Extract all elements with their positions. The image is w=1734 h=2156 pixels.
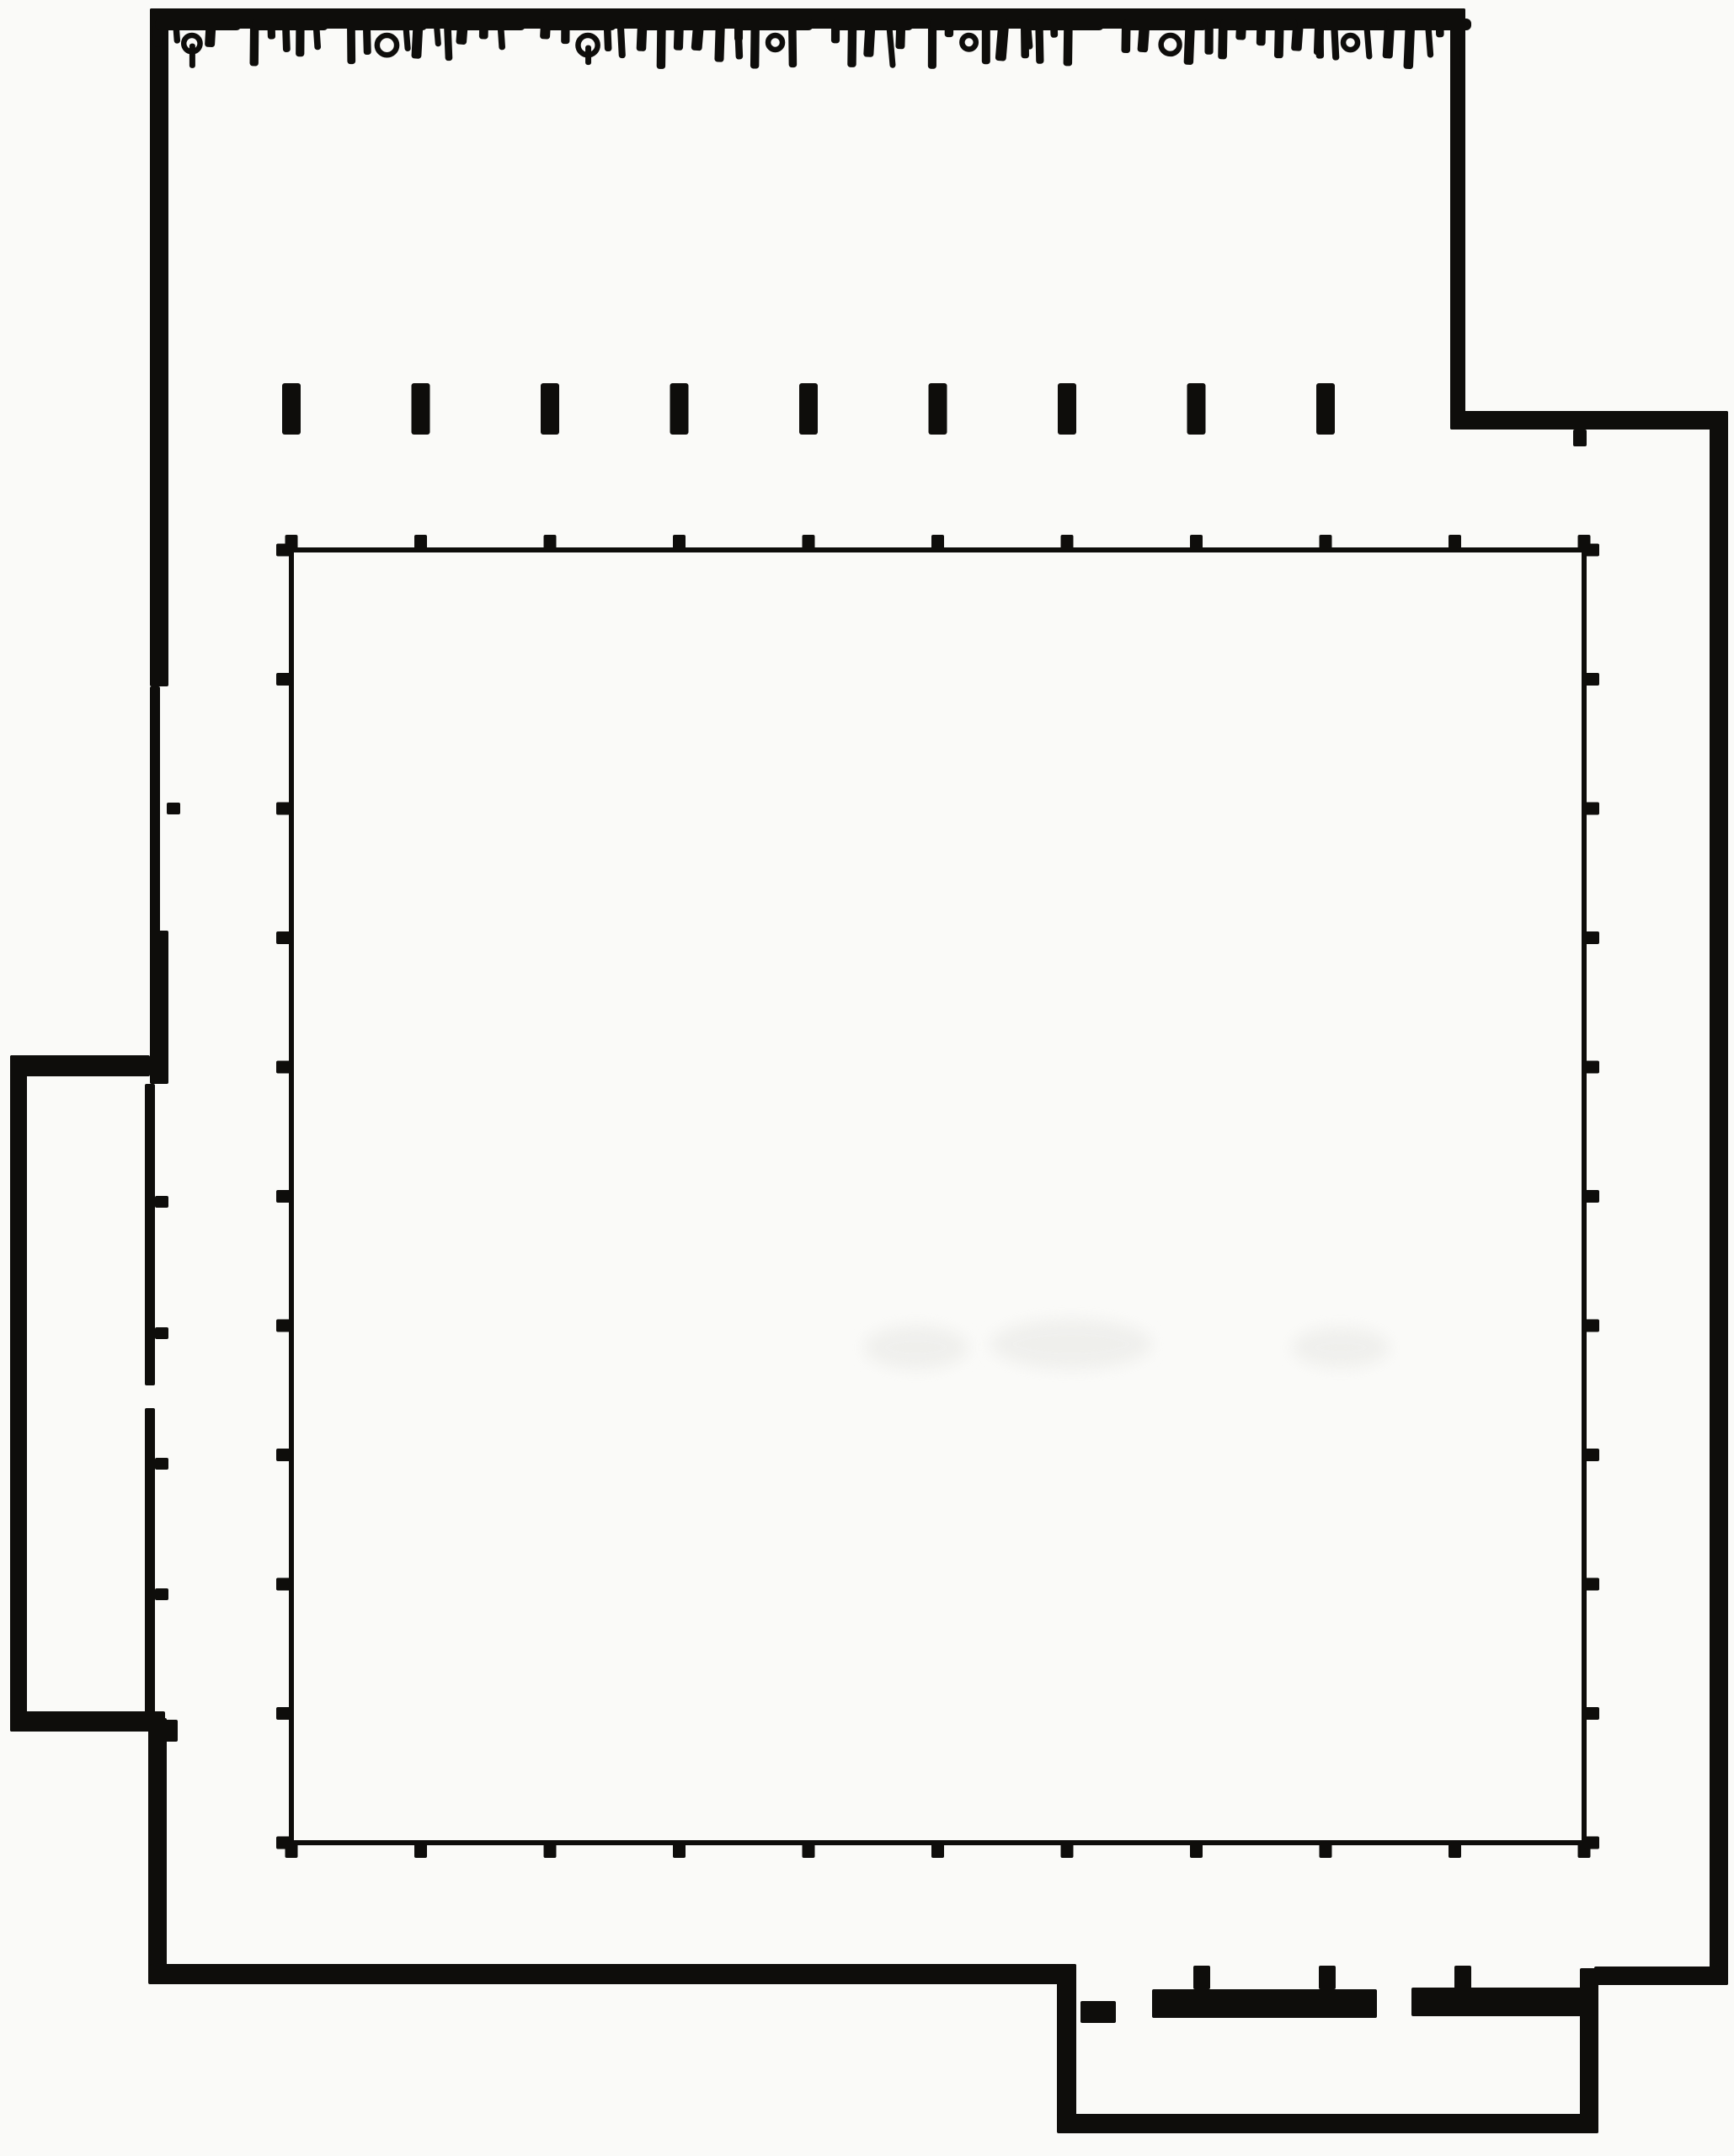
courtyard-column-left [276, 1837, 291, 1849]
porch-bottom-wall [1057, 2114, 1598, 2133]
left-wall-annex-lower [145, 1408, 155, 1718]
courtyard-column-bottom [414, 1844, 427, 1858]
paper-smudge [990, 1319, 1152, 1369]
scribble-blot [1027, 19, 1104, 30]
courtyard-column-left [276, 1320, 291, 1332]
courtyard-column-left [276, 544, 291, 557]
courtyard-column-bottom [544, 1844, 557, 1858]
right-step-wall [1450, 411, 1728, 430]
scribble-blot [736, 19, 814, 30]
left-wall-tick-5 [155, 1588, 168, 1600]
courtyard-column-right [1585, 1837, 1599, 1849]
courtyard-column-right [1585, 1449, 1599, 1461]
courtyard-column-top [544, 535, 557, 549]
pilaster [1316, 383, 1335, 435]
scribble-blot [1123, 19, 1208, 30]
courtyard-column-right [1585, 1061, 1599, 1074]
courtyard-column-top [414, 535, 427, 549]
scanned-plan-page [0, 0, 1734, 2156]
left-annex-top-wall [10, 1055, 150, 1076]
courtyard-column-top [1578, 535, 1591, 549]
porch-pilaster-2 [1319, 1966, 1336, 1989]
scribble-tail [585, 45, 591, 66]
porch-left-wall [1057, 1964, 1076, 2124]
scribble-blot [542, 19, 616, 30]
left-wall-thick [150, 931, 168, 1084]
courtyard-column-bottom [803, 1844, 815, 1858]
courtyard-column-right [1585, 1578, 1599, 1591]
courtyard-column-bottom [1190, 1844, 1203, 1858]
courtyard-column-left [276, 1449, 291, 1461]
porch-wall-segment-b [1411, 1988, 1594, 2016]
left-wall-annex-upper [145, 1084, 155, 1385]
courtyard-column-right [1585, 1707, 1599, 1720]
courtyard-column-top [1320, 535, 1332, 549]
courtyard-column-left [276, 673, 291, 686]
left-wall-tick-4 [155, 1458, 168, 1470]
courtyard-column-right [1585, 1190, 1599, 1203]
left-annex-left-wall [10, 1055, 27, 1732]
left-annex-bottom-stub [163, 1720, 178, 1742]
pilaster [412, 383, 430, 435]
courtyard-column-top [803, 535, 815, 549]
courtyard-column-left [276, 1190, 291, 1203]
courtyard-column-bottom [1449, 1844, 1461, 1858]
scribble-blot [1220, 19, 1297, 30]
courtyard-column-top [1449, 535, 1461, 549]
scribble-blot [446, 19, 526, 30]
scribble-blot [252, 19, 328, 30]
floor-plan-drawing [0, 0, 1734, 2156]
paper-smudge [1292, 1327, 1390, 1368]
left-wall-tick-3 [155, 1327, 168, 1339]
pilaster [1058, 383, 1076, 435]
porch-door-jamb [1080, 2001, 1116, 2023]
scribble-tail [189, 44, 195, 68]
courtyard-column-right [1585, 931, 1599, 944]
scribble-blot [639, 19, 721, 30]
courtyard-column-right [1585, 803, 1599, 815]
left-wall-tick-2 [155, 1196, 168, 1208]
courtyard-column-right [1585, 1320, 1599, 1332]
floor-plan-svg [0, 0, 1734, 2156]
porch-pilaster-3 [1454, 1966, 1471, 1989]
courtyard-column-top [931, 535, 944, 549]
pilaster [1187, 383, 1206, 435]
courtyard-column-bottom [673, 1844, 686, 1858]
pilaster [929, 383, 947, 435]
pilaster [541, 383, 559, 435]
courtyard-column-bottom [931, 1844, 944, 1858]
paper-smudge [864, 1326, 968, 1369]
courtyard-column-bottom [1320, 1844, 1332, 1858]
porch-connector-wall [1594, 1967, 1728, 1985]
left-wall-mid [150, 686, 160, 936]
left-wall-upper [150, 8, 168, 686]
porch-wall-segment-a [1152, 1989, 1377, 2018]
courtyard-column-left [276, 803, 291, 815]
porch-pilaster-1 [1193, 1966, 1210, 1989]
pilaster [670, 383, 689, 435]
courtyard-column-left [276, 1578, 291, 1591]
left-annex-bottom-wall [10, 1711, 165, 1732]
right-step-tick [1573, 430, 1587, 446]
scribble-blot [833, 19, 914, 30]
bottom-wall [150, 1964, 1076, 1984]
scribble-blot [349, 19, 427, 30]
courtyard-column-left [276, 1061, 291, 1074]
courtyard-column-top [1061, 535, 1074, 549]
scribble-stroke [928, 24, 936, 69]
courtyard-column-left [276, 931, 291, 944]
scribble-blot [1386, 19, 1471, 30]
upper-right-wall [1450, 8, 1465, 430]
courtyard-column-left [276, 1707, 291, 1720]
left-wall-tick-1 [167, 803, 180, 814]
right-wall [1710, 411, 1728, 1985]
left-wall-lower [148, 1718, 167, 1984]
scribble-blot [930, 19, 1008, 30]
scribble-stroke [657, 24, 666, 69]
pilaster [799, 383, 818, 435]
courtyard-column-bottom [1061, 1844, 1074, 1858]
paper-background [0, 0, 1734, 2156]
courtyard-column-top [1190, 535, 1203, 549]
courtyard-column-top [673, 535, 686, 549]
courtyard-column-right [1585, 673, 1599, 686]
scribble-blot [155, 19, 242, 30]
pilaster [282, 383, 301, 435]
